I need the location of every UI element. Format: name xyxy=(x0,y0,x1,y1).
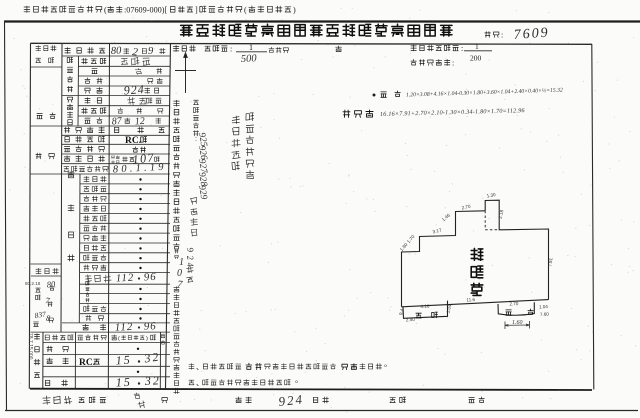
svg-text:°: ° xyxy=(295,378,298,387)
svg-text:3.17: 3.17 xyxy=(432,227,442,234)
svg-text:(: ( xyxy=(244,6,247,15)
svg-text:2.18: 2.18 xyxy=(498,209,505,219)
svg-text:1.04: 1.04 xyxy=(539,304,549,309)
svg-text:78.7.15.000: 78.7.15.000 xyxy=(27,333,33,360)
svg-text:°: ° xyxy=(384,362,387,371)
svg-text:12: 12 xyxy=(134,116,145,128)
svg-text:32: 32 xyxy=(143,373,161,388)
svg-text:4.16: 4.16 xyxy=(420,304,430,309)
svg-text:1.20×3.08+4.16×1.04-0.30×1.80+: 1.20×3.08+4.16×1.04-0.30×1.80+3.60×1.04+… xyxy=(406,87,563,99)
svg-text:、: 、 xyxy=(196,362,204,371)
svg-text:7.60: 7.60 xyxy=(540,312,550,317)
svg-text:7: 7 xyxy=(177,279,184,291)
svg-text:837: 837 xyxy=(34,309,47,320)
svg-text:80: 80 xyxy=(46,279,56,290)
svg-text:RC.: RC. xyxy=(79,358,95,368)
svg-text::: : xyxy=(501,31,503,40)
svg-text:(: ( xyxy=(118,336,120,342)
svg-text::07609-000)[: :07609-000)[ xyxy=(124,6,167,15)
svg-text:15: 15 xyxy=(115,375,132,390)
svg-text:7.91: 7.91 xyxy=(548,257,554,267)
svg-text:11.6: 11.6 xyxy=(466,297,475,302)
svg-text:96: 96 xyxy=(144,320,157,333)
svg-text:2.40: 2.40 xyxy=(406,317,416,323)
svg-text:(: ( xyxy=(104,6,107,15)
svg-text:1: 1 xyxy=(249,43,253,52)
svg-text:): ) xyxy=(146,336,148,342)
svg-text:16.16×7.91+2.70×2.10-1.30×0.34: 16.16×7.91+2.70×2.10-1.30×0.34-1.80×1.70… xyxy=(380,107,526,118)
svg-text:924: 924 xyxy=(278,391,305,409)
svg-text:1: 1 xyxy=(475,42,479,51)
svg-text:7: 7 xyxy=(45,295,51,306)
svg-text:15: 15 xyxy=(115,352,132,367)
svg-text:80: 80 xyxy=(111,45,123,57)
svg-text:]: ] xyxy=(195,6,198,15)
svg-text:929: 929 xyxy=(196,185,208,201)
svg-text:2: 2 xyxy=(185,255,196,262)
svg-text::: : xyxy=(452,59,454,68)
svg-text:9: 9 xyxy=(185,247,196,254)
svg-text:RC.: RC. xyxy=(125,136,141,146)
svg-text:2.70: 2.70 xyxy=(509,301,519,306)
svg-text:0: 0 xyxy=(177,268,182,279)
svg-text::: : xyxy=(230,45,232,54)
svg-text:2.70: 2.70 xyxy=(461,204,471,211)
svg-text:500: 500 xyxy=(241,53,258,65)
svg-text:112: 112 xyxy=(115,321,134,334)
svg-text:1.46: 1.46 xyxy=(441,212,451,222)
svg-text:80.1.19: 80.1.19 xyxy=(113,162,167,176)
svg-text:2: 2 xyxy=(132,46,139,59)
svg-text:96: 96 xyxy=(144,271,157,284)
svg-text:1.60: 1.60 xyxy=(512,320,523,326)
svg-text:87: 87 xyxy=(111,116,123,128)
svg-text:32: 32 xyxy=(142,349,161,365)
svg-text:1.30: 1.30 xyxy=(486,192,496,199)
svg-text:80.2.18: 80.2.18 xyxy=(25,281,41,286)
svg-text:1.04: 1.04 xyxy=(446,303,453,313)
svg-text:200: 200 xyxy=(470,54,482,63)
svg-text:9: 9 xyxy=(148,46,154,57)
svg-text:1.70: 1.70 xyxy=(406,234,416,244)
svg-text:1: 1 xyxy=(179,257,184,268)
svg-text:7609: 7609 xyxy=(513,26,550,43)
svg-text:924: 924 xyxy=(123,82,145,97)
svg-text:): ) xyxy=(293,6,296,15)
svg-text:112: 112 xyxy=(116,272,135,285)
svg-text::: : xyxy=(461,44,463,53)
